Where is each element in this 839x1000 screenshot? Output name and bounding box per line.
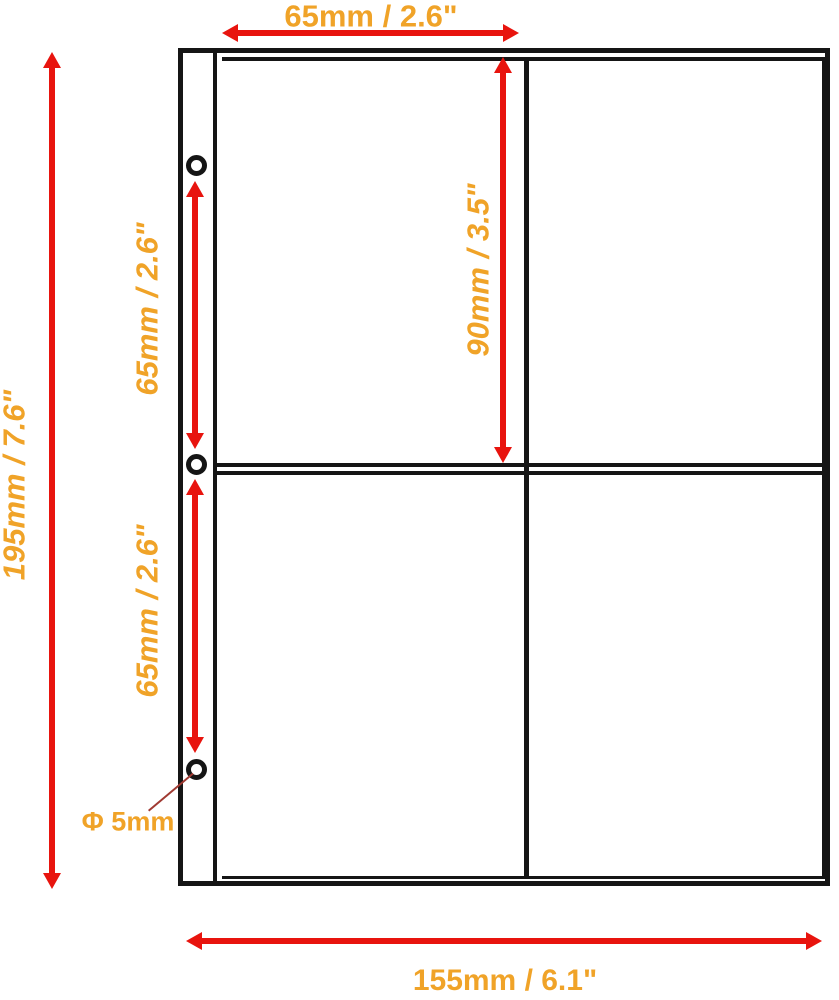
binder-hole-top [186,155,207,176]
label-hole-spacing-lower: 65mm / 2.6" [132,524,163,697]
label-pocket-width: 65mm / 2.6" [284,1,457,32]
pocket-center-divider [524,57,529,879]
dimension-arrow-hole-spacing-lower [192,494,198,738]
dimension-arrow-page-width [201,938,807,944]
binding-strip-seam [213,53,217,881]
label-page-height: 195mm / 7.6" [0,390,30,580]
binder-hole-middle [186,454,207,475]
label-page-width: 155mm / 6.1" [413,966,597,996]
label-hole-spacing-upper: 65mm / 2.6" [132,222,163,395]
dimension-diagram: 65mm / 2.6" 195mm / 7.6" 65mm / 2.6" 65m… [0,0,839,1000]
label-pocket-height: 90mm / 3.5" [463,183,494,356]
label-hole-diameter: Φ 5mm [82,809,175,836]
pocket-right-seam [822,57,825,879]
pocket-middle-seam-upper [217,463,825,467]
dimension-arrow-page-height [49,67,55,874]
dimension-arrow-hole-spacing-upper [192,196,198,434]
dimension-arrow-pocket-height [500,72,506,448]
pocket-middle-seam-lower [217,471,825,475]
pocket-bottom-seam [222,876,825,879]
